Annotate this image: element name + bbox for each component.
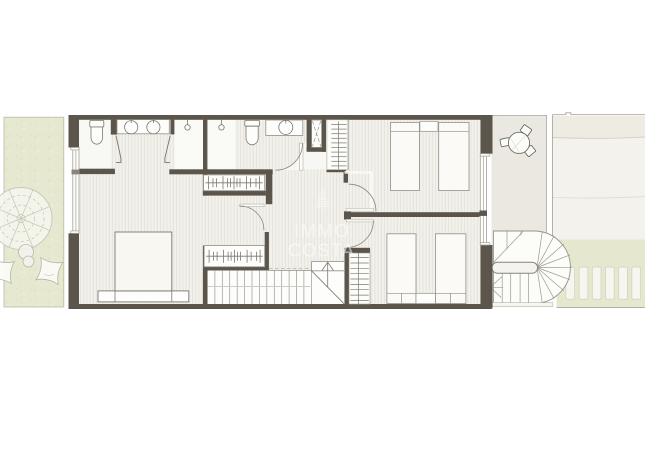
svg-text:IMMO: IMMO — [294, 220, 350, 241]
svg-text:COSTA: COSTA — [288, 240, 355, 261]
